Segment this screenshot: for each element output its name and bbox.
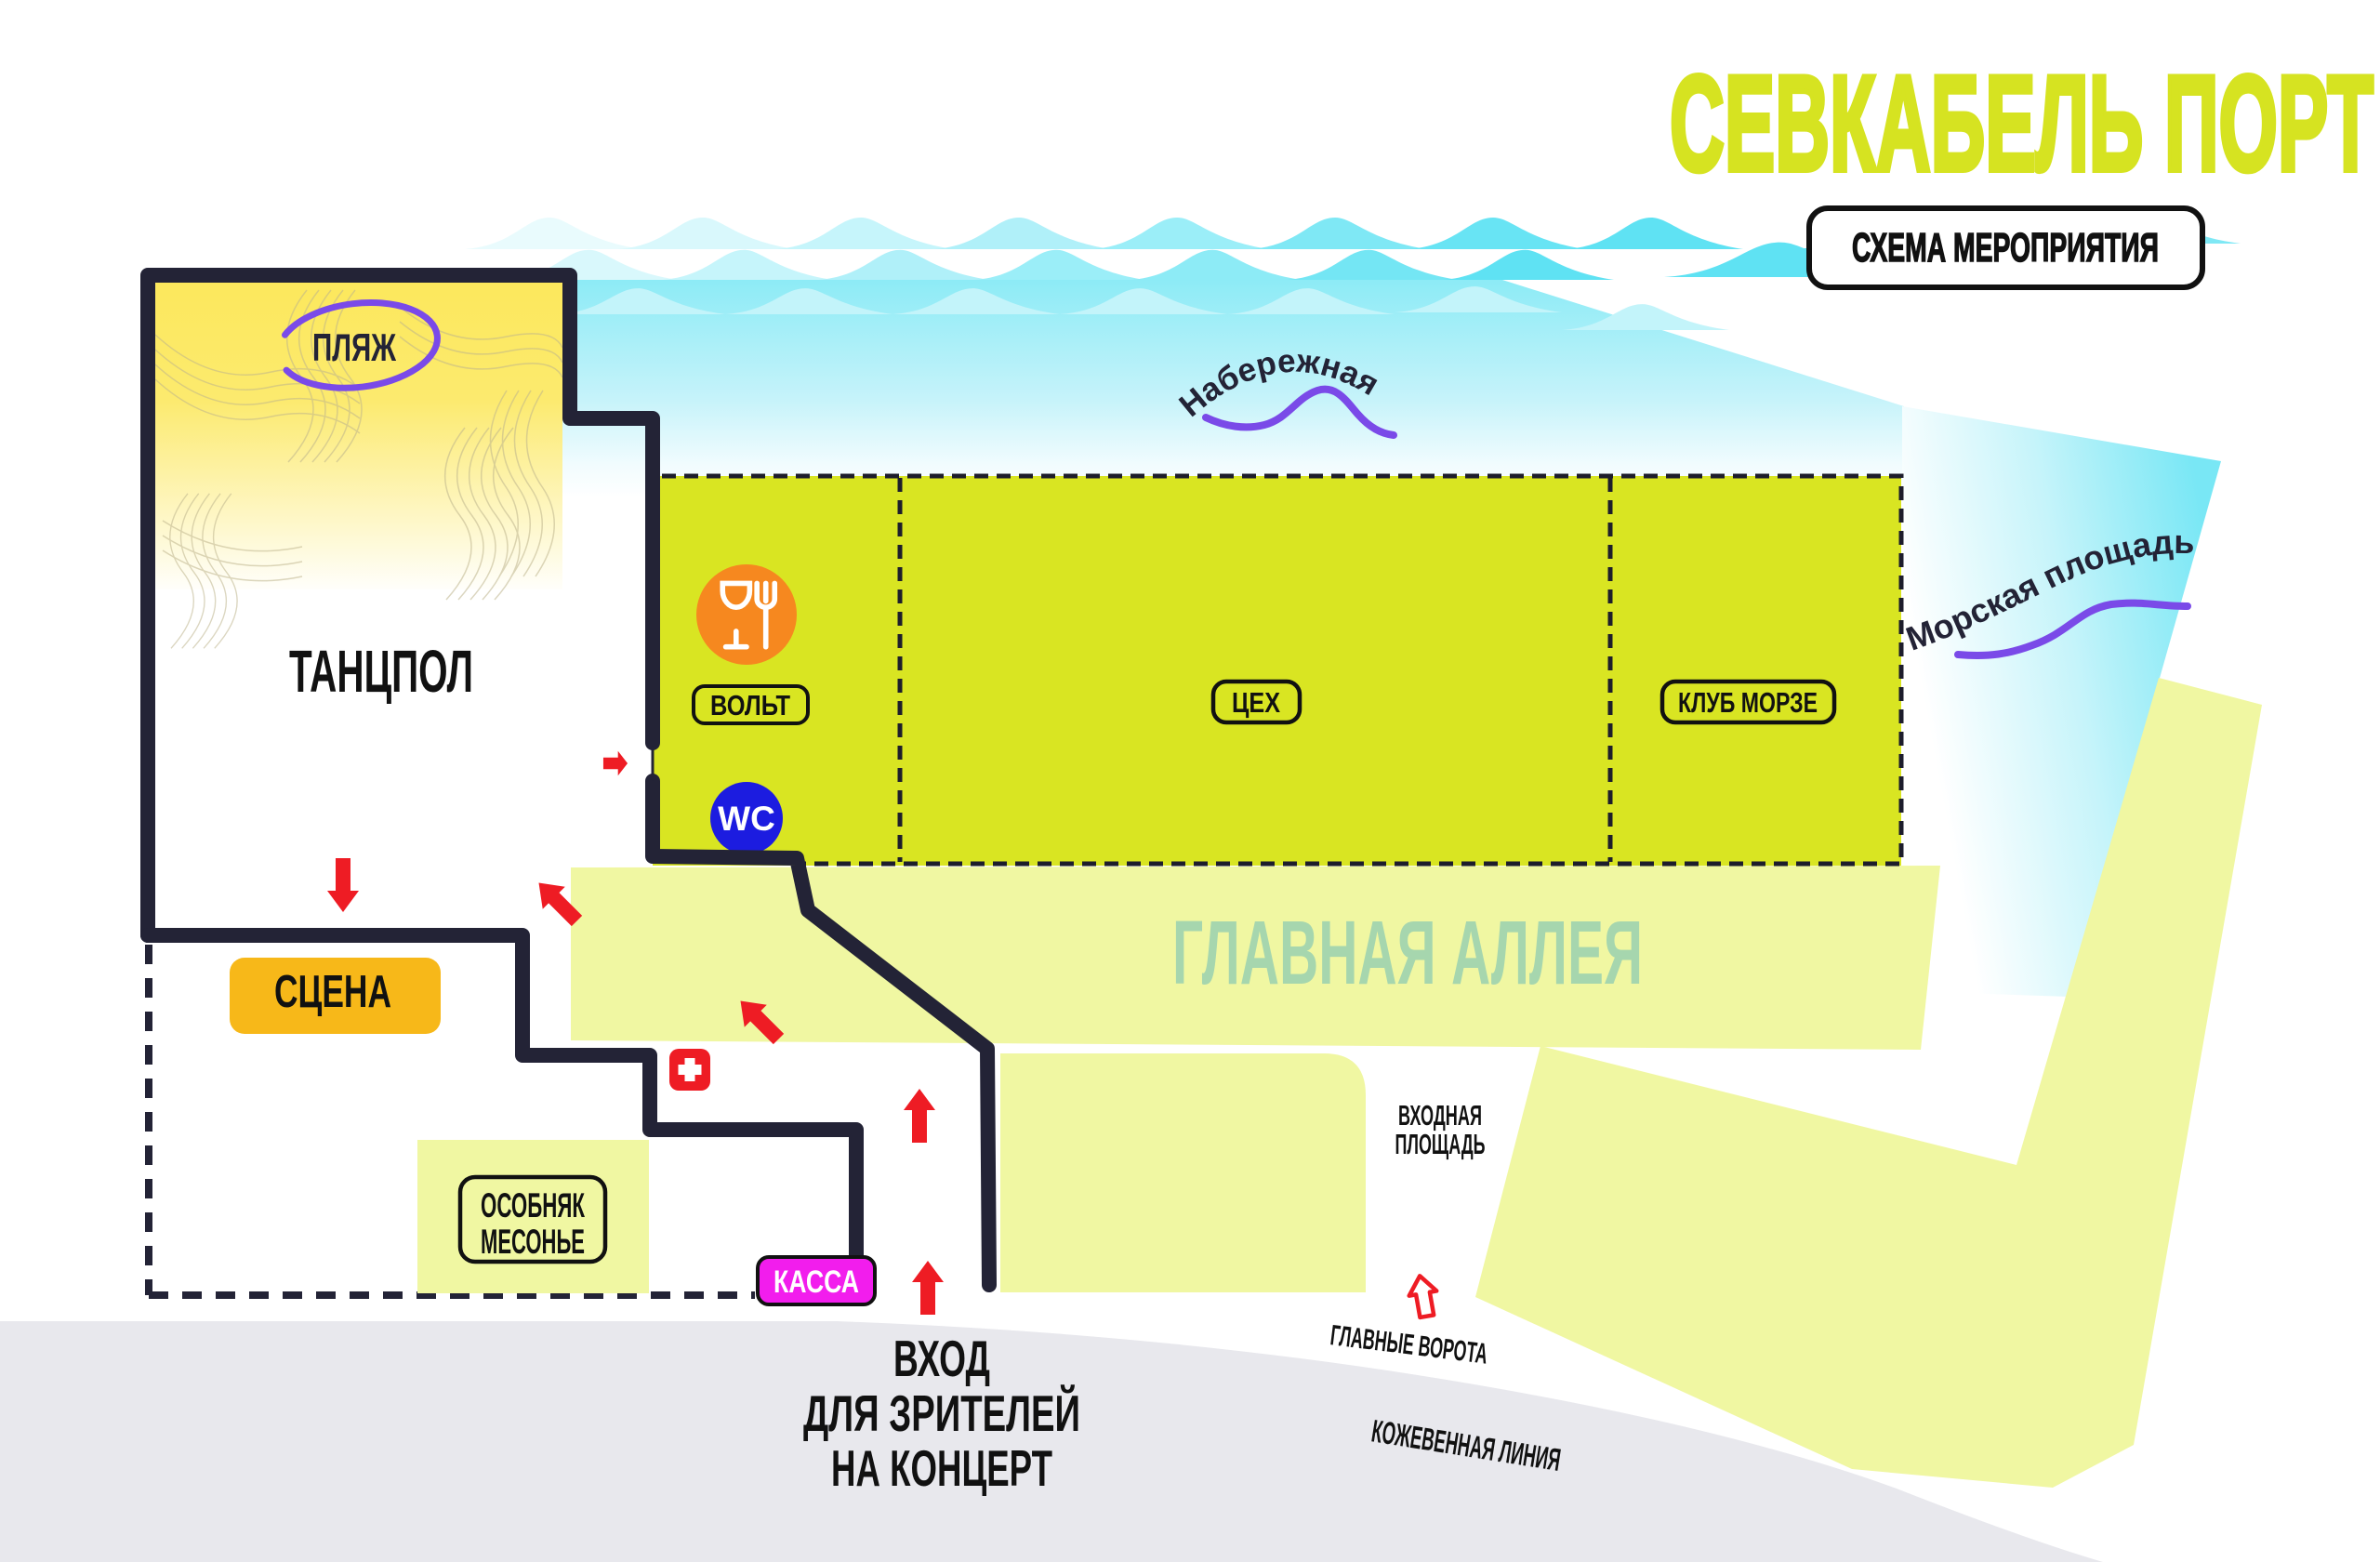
svg-text:СХЕМА МЕРОПРИЯТИЯ: СХЕМА МЕРОПРИЯТИЯ [1852, 225, 2159, 271]
svg-text:ГЛАВНАЯ АЛЛЕЯ: ГЛАВНАЯ АЛЛЕЯ [1172, 902, 1643, 1003]
svg-text:ПЛЯЖ: ПЛЯЖ [312, 325, 397, 369]
svg-text:ВОЛЬТ: ВОЛЬТ [710, 689, 790, 721]
svg-text:ПЛОЩАДЬ: ПЛОЩАДЬ [1395, 1128, 1486, 1160]
svg-text:ВХОД: ВХОД [893, 1330, 990, 1387]
svg-text:WC: WC [718, 800, 775, 838]
svg-text:КАССА: КАССА [773, 1264, 859, 1300]
svg-text:НА КОНЦЕРТ: НА КОНЦЕРТ [831, 1439, 1052, 1497]
svg-text:ЦЕХ: ЦЕХ [1232, 686, 1280, 719]
svg-text:МЕСОНЬЕ: МЕСОНЬЕ [481, 1223, 585, 1261]
svg-text:ДЛЯ ЗРИТЕЛЕЙ: ДЛЯ ЗРИТЕЛЕЙ [803, 1383, 1080, 1442]
svg-text:ТАНЦПОЛ: ТАНЦПОЛ [289, 638, 473, 705]
svg-text:ВХОДНАЯ: ВХОДНАЯ [1398, 1099, 1482, 1132]
svg-text:СЦЕНА: СЦЕНА [274, 967, 391, 1017]
svg-text:КЛУБ МОРЗЕ: КЛУБ МОРЗЕ [1678, 686, 1818, 719]
svg-text:ОСОБНЯК: ОСОБНЯК [481, 1186, 585, 1224]
svg-text:СЕВКАБЕЛЬ ПОРТ: СЕВКАБЕЛЬ ПОРТ [1670, 47, 2373, 199]
